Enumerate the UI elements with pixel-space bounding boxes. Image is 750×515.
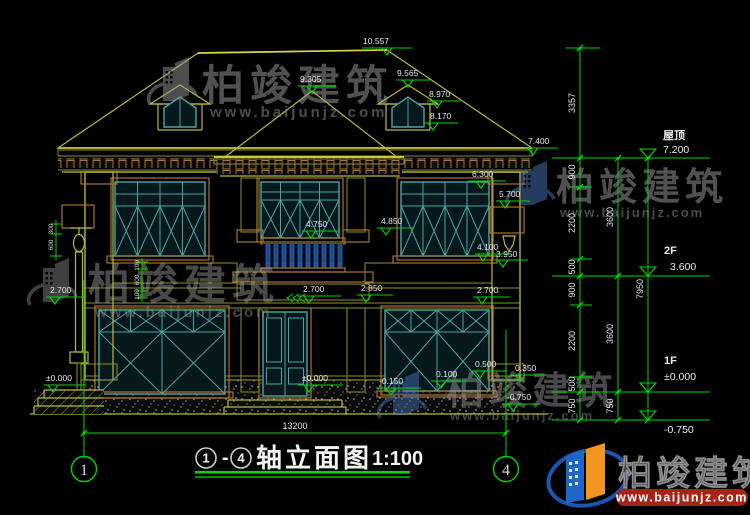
level-value: 3.600 (670, 261, 696, 273)
elevation-marker: 2.850 (357, 283, 393, 302)
logo-tower-orange (586, 443, 605, 500)
elevation-marker: 7.400 (524, 136, 558, 155)
drawing-title: 1 - 4 轴立面图 1:100 (195, 443, 423, 478)
svg-text:0.350: 0.350 (515, 363, 537, 373)
level-value: ±0.000 (664, 371, 696, 383)
level-label: 屋顶 (663, 129, 685, 142)
title-text: 轴立面图 (256, 443, 372, 473)
brand-logo-icon (29, 258, 76, 305)
watermark-url: www.baijunjz.com (94, 304, 272, 321)
dim-label: 3600 (605, 207, 615, 227)
lantern (74, 235, 85, 252)
leader-chevrons (287, 294, 305, 302)
dim-label: 100 (134, 289, 141, 300)
elevation-marker: 10.557 (362, 36, 412, 55)
level-label: 2F (664, 245, 677, 257)
level-value: 7.200 (663, 144, 689, 156)
dim-label: 600 (134, 274, 141, 285)
level-value: -0.750 (664, 424, 694, 436)
watermark-brand: 柏竣建筑 (88, 261, 280, 308)
axis-number: 4 (502, 462, 510, 479)
dim-label: 750 (567, 398, 577, 413)
title-axis-from: 1 (202, 451, 209, 466)
footer-brand-name: 柏竣建筑 (618, 454, 750, 493)
overall-width-dim: 13200 (282, 421, 307, 431)
dim-label: 500 (567, 259, 577, 274)
dim-label: 600 (48, 239, 55, 250)
dim-label: 3600 (605, 324, 615, 344)
dim-label: 750 (605, 398, 615, 413)
right-dimension-chains: 3357 900 2200 500 900 2200 500 750 3600 … (552, 45, 710, 423)
svg-text:6.300: 6.300 (472, 169, 494, 179)
dim-label: 500 (567, 376, 577, 391)
steps-left (34, 390, 104, 414)
watermark-right: 柏竣建筑 www.baijunjz.com (507, 161, 728, 220)
right-post-cap (490, 207, 524, 233)
roof-ridge (198, 50, 387, 53)
elevation-marker: ±0.000 (44, 373, 86, 392)
svg-text:2.850: 2.850 (361, 283, 383, 293)
elevation-marker: 3.950 (494, 249, 528, 267)
dim-label: 2200 (567, 331, 577, 351)
watermark-url: www.baijunjz.com (209, 104, 387, 121)
svg-text:8.970: 8.970 (429, 89, 451, 99)
axis-bubble-left: 1 (72, 457, 97, 482)
svg-text:-0.150: -0.150 (379, 376, 403, 386)
svg-text:-0.750: -0.750 (507, 392, 531, 402)
svg-text:4.850: 4.850 (381, 216, 403, 226)
svg-text:±0.000: ±0.000 (46, 373, 72, 383)
brand-logo-icon (149, 57, 196, 104)
svg-text:2.700: 2.700 (477, 285, 499, 295)
svg-text:7.400: 7.400 (528, 136, 550, 146)
svg-text:10.557: 10.557 (363, 36, 389, 46)
window-2f-center (257, 178, 343, 242)
cad-canvas: 柏竣建筑 www.baijunjz.com 柏竣建筑 www.baijunjz.… (0, 0, 750, 515)
window-2f-left (107, 178, 213, 263)
elevation-marker: 9.565 (396, 68, 430, 87)
title-underline-thick (195, 471, 410, 474)
level-roof: 屋顶 7.200 (640, 129, 689, 158)
svg-text:2.700: 2.700 (303, 284, 325, 294)
dim-label: 100 (134, 260, 141, 271)
watermark-url: www.baijunjz.com (559, 205, 704, 220)
title-axis-to: 4 (237, 451, 245, 466)
svg-text:0.500: 0.500 (475, 359, 497, 369)
dim-label: 2200 (567, 213, 577, 233)
watermark-bottom: 柏竣建筑 www.baijunjz.com (379, 371, 618, 423)
svg-text:5.700: 5.700 (499, 189, 521, 199)
footer-brand: 柏竣建筑 www.baijunjz.com (543, 443, 750, 513)
svg-text:9.305: 9.305 (300, 74, 322, 84)
dim-label: 3357 (567, 93, 577, 113)
svg-text:3.950: 3.950 (496, 249, 518, 259)
svg-text:8.170: 8.170 (430, 111, 452, 121)
svg-text:0.100: 0.100 (436, 369, 458, 379)
axis-bubble-right: 4 (494, 457, 519, 482)
title-dash: - (222, 447, 229, 469)
elevation-marker: 8.170 (424, 111, 458, 130)
dim-label: 300 (48, 223, 55, 234)
dim-label: 7950 (635, 279, 645, 299)
dim-label: 900 (567, 282, 577, 297)
title-underline-thin (195, 476, 410, 477)
elevation-marker: 8.970 (427, 89, 460, 108)
elevation-drawing: 柏竣建筑 www.baijunjz.com 柏竣建筑 www.baijunjz.… (0, 0, 750, 515)
svg-text:9.565: 9.565 (397, 68, 419, 78)
axis-number: 1 (80, 462, 88, 479)
level-label: 1F (664, 355, 677, 367)
svg-text:2.700: 2.700 (50, 285, 72, 295)
watermark-brand: 柏竣建筑 (556, 167, 728, 209)
svg-text:4.750: 4.750 (306, 219, 328, 229)
balcony-top-rail (261, 238, 345, 244)
dim-label: 900 (567, 164, 577, 179)
svg-text:±0.000: ±0.000 (302, 373, 328, 383)
title-scale: 1:100 (372, 448, 423, 470)
footer-url: www.baijunjz.com (615, 491, 748, 505)
